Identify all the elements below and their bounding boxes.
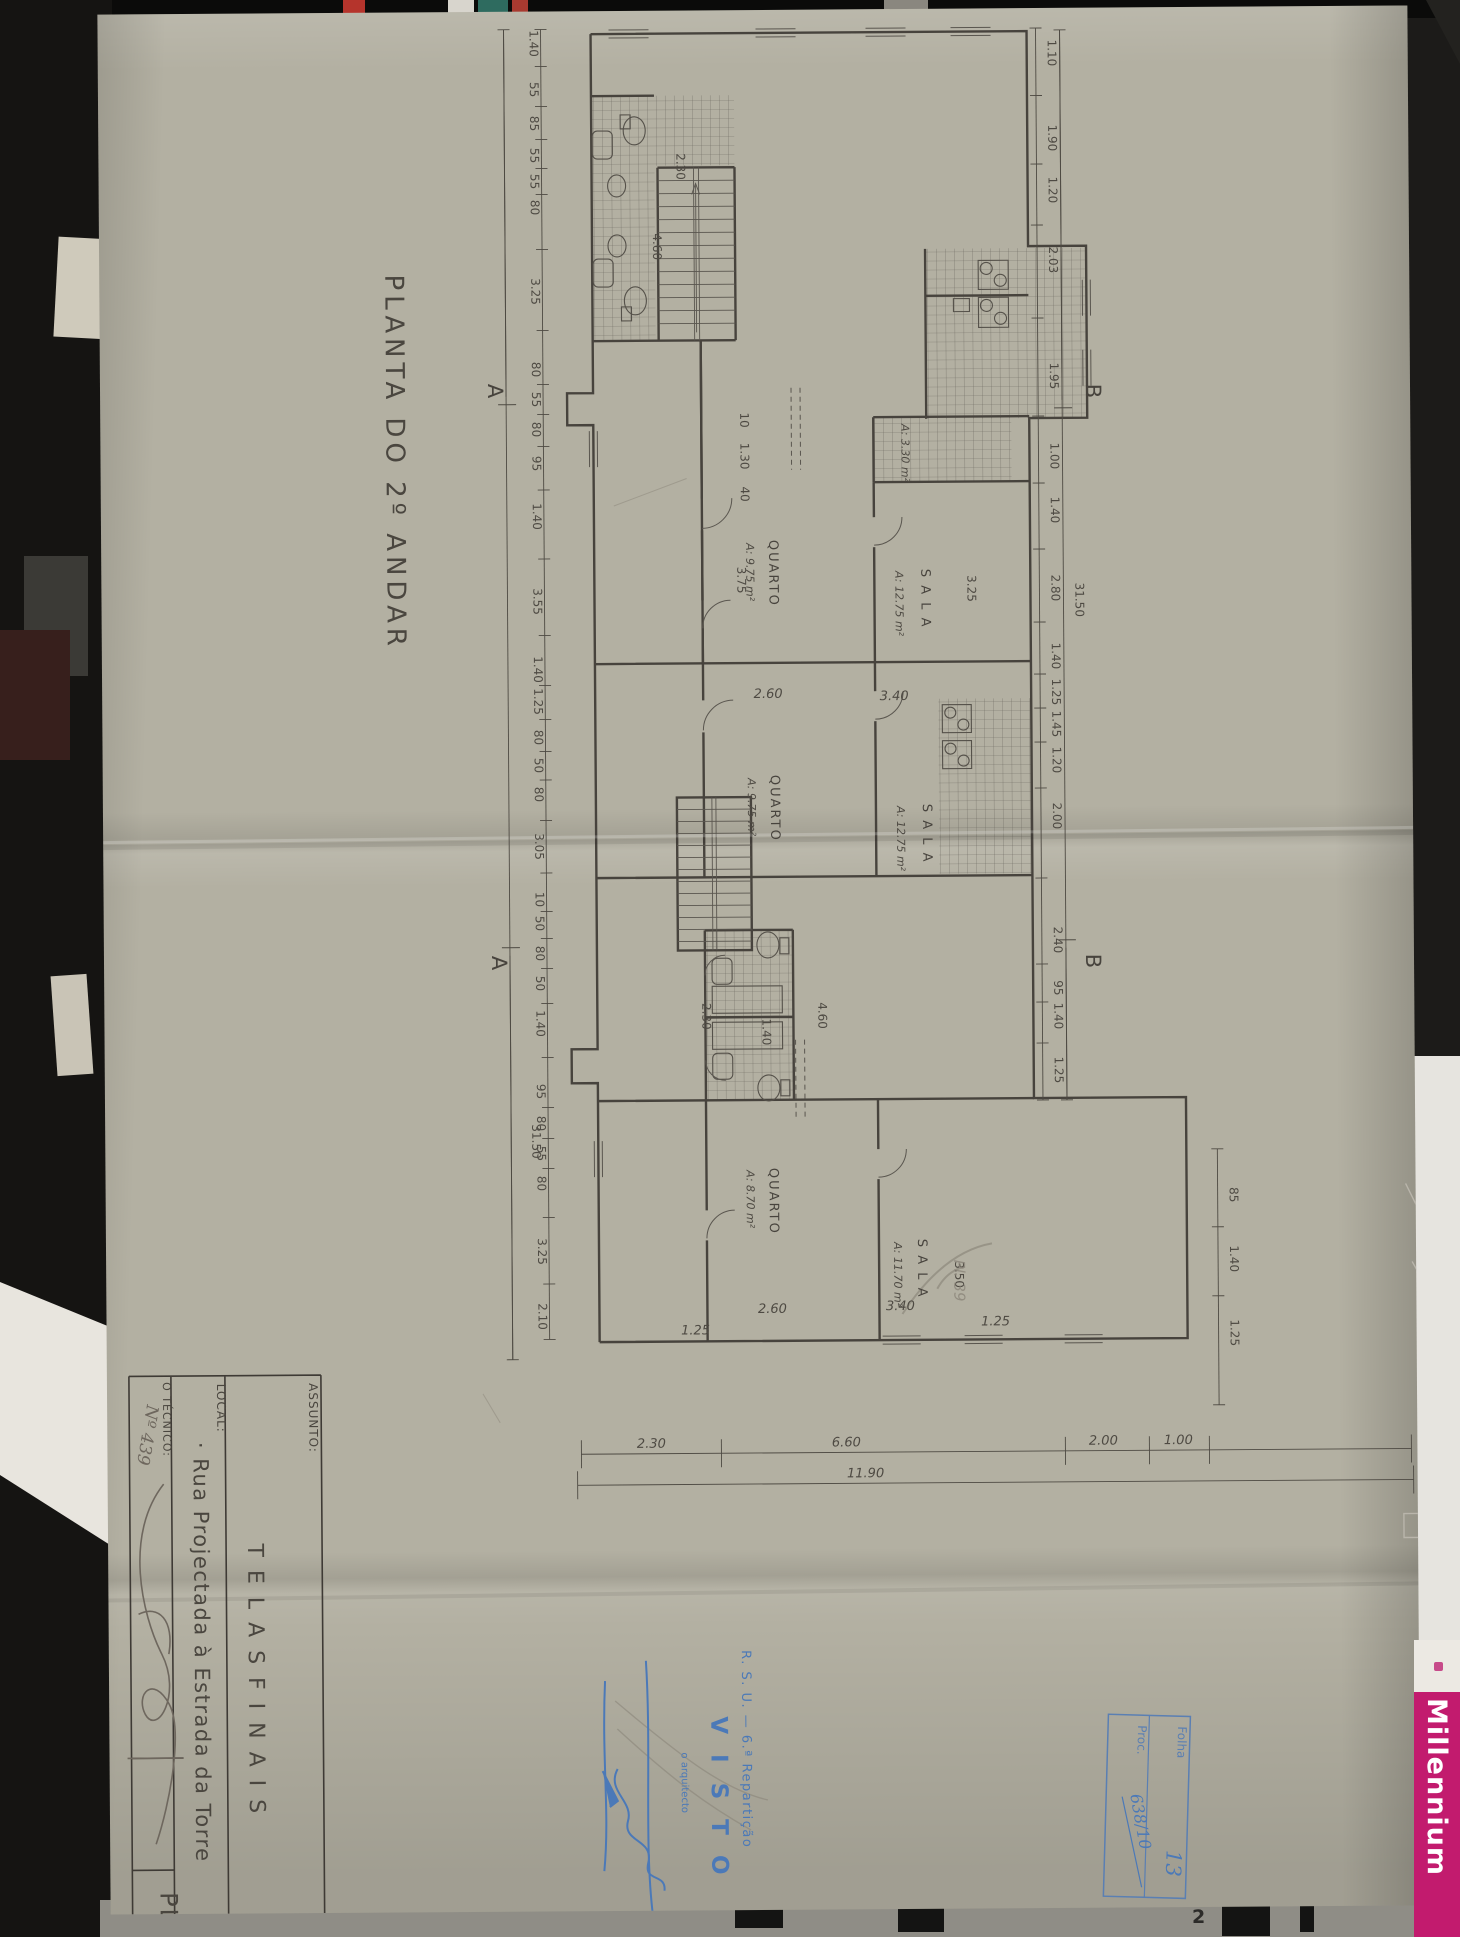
dimension-label: 85 [1227, 1187, 1241, 1202]
dimension-label: 1.00 [1164, 1433, 1193, 1448]
dimension-label: 2.03 [1046, 247, 1060, 274]
tecnico-number: Nº 439 [132, 1402, 162, 1466]
dimension-label: 1.30 [737, 443, 751, 470]
dimension-label: 1.40 [1227, 1245, 1241, 1272]
room-area: A: 11.70 m² [891, 1241, 904, 1308]
dim-chain-line [578, 1479, 1414, 1485]
dimension-label: 1.40 [1048, 497, 1062, 524]
section-marker-a: A [483, 384, 507, 399]
section-marker-b: B [1081, 384, 1105, 399]
visto-line1: R. S. U. — 6.ª Repartição [738, 1650, 754, 1848]
assunto-label: ASSUNTO: [306, 1383, 320, 1453]
dimension-label: 1.90 [1045, 125, 1059, 152]
section-lines [495, 26, 1078, 1360]
folha-value: 13 [1161, 1850, 1186, 1877]
dimension-label: 80 [529, 422, 543, 437]
dim-chain-line [1217, 1149, 1219, 1405]
room-area: A: 3.30 m² [898, 423, 911, 483]
walls-heavy [565, 30, 1188, 1342]
dimension-label: 1.25 [681, 1323, 710, 1338]
dimension-label: 1.45 [1049, 711, 1063, 738]
dimension-label: 80 [535, 1176, 549, 1191]
pencil-scribbles [477, 476, 996, 1832]
dimension-label: 10 [737, 412, 751, 427]
plan-title: PLANTA DO 2º ANDAR [378, 274, 411, 651]
tecnico-signature [126, 1484, 185, 1844]
assunto-value: T E L A S F I N A I S [242, 1542, 269, 1816]
section-marker-b: B [1081, 954, 1105, 969]
dimension-label: 55 [527, 148, 541, 163]
folha-label: Folha [1174, 1726, 1189, 1758]
registry-stamp: Folha Proc. 13 638/10 [1103, 1714, 1190, 1898]
paper-sliver-2 [51, 974, 94, 1076]
room-area: A: 9.75 m² [745, 777, 758, 837]
bottom-digit: 2 [1192, 1906, 1205, 1928]
dimension-label: 80 [529, 362, 543, 377]
room-name: QUARTO [767, 775, 782, 842]
dimension-label: 1.40 [1051, 1003, 1065, 1030]
visto-signature [602, 1661, 665, 1913]
photographed-blueprint: 2 PLANTA DO 2º ANDAR [0, 0, 1460, 1937]
dimension-label: 2.00 [1089, 1434, 1118, 1449]
dimension-label: 80 [533, 946, 547, 961]
dimension-label: 1.95 [1047, 363, 1061, 390]
dimension-label: 1.25 [981, 1314, 1010, 1329]
dim-chain-line [1036, 28, 1043, 1100]
room-area: A: 9.75 m² [743, 542, 756, 602]
dimension-label: 1.40 [533, 1010, 547, 1037]
dimension-label: 2.30 [699, 1003, 713, 1030]
local-value: · Rua Projectada à Estrada da Torre [188, 1442, 215, 1863]
dimension-label: 55 [529, 392, 543, 407]
room-name: S A L A [914, 1239, 929, 1299]
dimension-label: 80 [531, 730, 545, 745]
dimension-label: 3.25 [535, 1238, 549, 1265]
dimension-label: 1.25 [1049, 679, 1063, 706]
brand-dot [1434, 1662, 1443, 1671]
tecnico-label: O TÉCNICO: [160, 1382, 174, 1457]
brand-label: Millennium [1421, 1698, 1452, 1876]
dimension-label: 85 [527, 116, 541, 131]
dimension-label: 3.25 [528, 278, 542, 305]
dim-chain-line [503, 30, 512, 1360]
dimension-label: 55 [527, 82, 541, 97]
pencil-note: Pl. 39 [950, 1260, 968, 1302]
windows [587, 27, 1103, 1347]
dim-chain-line [581, 1448, 1411, 1454]
visto-line2: V I S T O [705, 1716, 732, 1880]
sheet-code: PL [154, 1892, 182, 1915]
room-name: S A L A [917, 569, 932, 629]
dimension-label: 31.50 [1072, 583, 1086, 617]
dimension-label: 95 [534, 1084, 548, 1099]
dimension-label: 1.00 [1047, 443, 1061, 470]
visto-line3: o arquitecto [679, 1753, 690, 1814]
local-label: LOCAL: [214, 1384, 228, 1433]
proc-label: Proc. [1134, 1725, 1149, 1755]
dimension-label: 50 [532, 758, 546, 773]
dimension-label: 50 [533, 976, 547, 991]
dimension-label: 2.60 [754, 687, 783, 702]
room-name: QUARTO [765, 1168, 780, 1235]
room-area: A: 12.75 m² [892, 570, 905, 637]
dimension-label: 6.60 [832, 1435, 861, 1450]
dimension-label: 1.20 [1050, 747, 1064, 774]
dimension-label: 1.20 [1046, 177, 1060, 204]
dimension-label: 2.60 [758, 1302, 787, 1317]
section-marker-a: A [487, 956, 511, 971]
blueprint-paper: PLANTA DO 2º ANDAR [97, 5, 1420, 1914]
dimension-label: 1.40 [530, 503, 544, 530]
dimension-label: 1.40 [531, 656, 545, 683]
dimension-label: 2.30 [637, 1437, 666, 1452]
dimension-label: 1.40 [1049, 643, 1063, 670]
room-name: QUARTO [765, 540, 780, 607]
proc-value: 638/10 [1126, 1792, 1155, 1851]
stairs [657, 167, 751, 951]
dimension-label: 95 [1051, 980, 1065, 995]
dimension-label: 4.60 [815, 1002, 829, 1029]
dimension-label: 4.60 [650, 233, 664, 260]
room-name: S A L A [919, 804, 934, 864]
dimension-label: 1.40 [527, 30, 541, 57]
dimension-label: 3.05 [532, 833, 546, 860]
dimension-label: 1.25 [1228, 1319, 1242, 1346]
dimension-label: 3.25 [964, 575, 978, 602]
dimension-label: 1.25 [531, 688, 545, 715]
dimension-label: 95 [529, 456, 543, 471]
dimension-label: 2.10 [535, 1303, 549, 1330]
floor-plan-drawing: PLANTA DO 2º ANDAR [97, 5, 1420, 1914]
room-area: A: 12.75 m² [894, 805, 907, 872]
dimension-label: 2.40 [1051, 927, 1065, 954]
dimension-label: 1.10 [1045, 40, 1059, 67]
dimension-label: 2.00 [1050, 803, 1064, 830]
dimension-label: 1.40 [759, 1019, 773, 1046]
dimension-label: 2.80 [1048, 575, 1062, 602]
dimension-label: 50 [533, 916, 547, 931]
dimension-label: 31.50 [529, 1124, 543, 1158]
dimension-label: 11.90 [847, 1466, 884, 1481]
tiled-floors [591, 93, 1092, 1101]
brand-bar: Millennium [1414, 1692, 1460, 1937]
dimension-label: 2.30 [673, 153, 687, 180]
dimension-label: 55 [528, 174, 542, 189]
dimension-label: 1.25 [1052, 1057, 1066, 1084]
dimension-label: 80 [528, 200, 542, 215]
dark-red-object [0, 630, 70, 760]
dimension-label: 3.55 [530, 588, 544, 615]
dimension-label: 10 [533, 892, 547, 907]
room-area: A: 8.70 m² [743, 1169, 756, 1229]
dimension-label: 3.40 [880, 689, 909, 704]
dimension-label: 40 [738, 486, 752, 501]
dimension-label: 80 [532, 787, 546, 802]
